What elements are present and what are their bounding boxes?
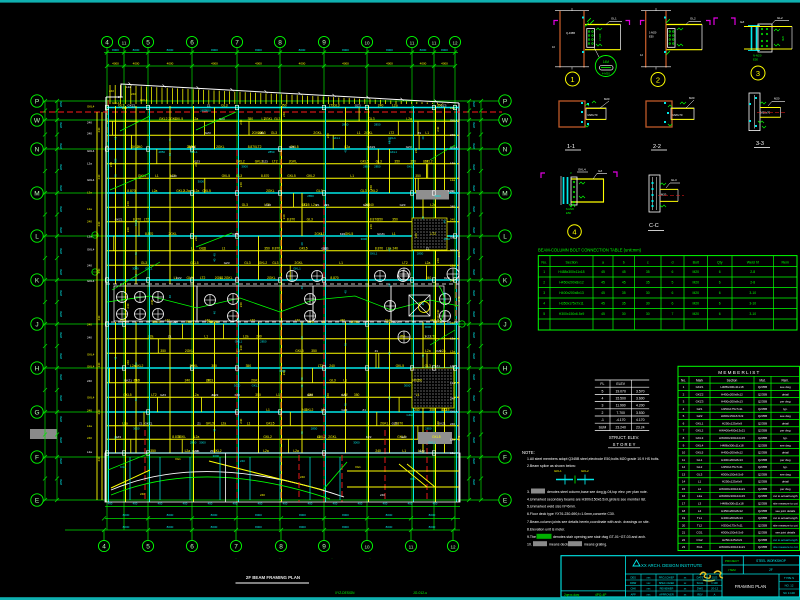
svg-text:GL1: GL1 <box>611 17 617 21</box>
svg-text:240: 240 <box>126 201 130 206</box>
svg-text:4.Unmarked secondary beams are: 4.Unmarked secondary beams are H300x150x… <box>527 498 646 502</box>
svg-text:detail: detail <box>782 451 789 455</box>
svg-text:2850: 2850 <box>59 142 63 149</box>
svg-text:Mark: Mark <box>696 379 703 383</box>
svg-text:13: 13 <box>682 472 686 476</box>
svg-text:400: 400 <box>133 502 138 506</box>
svg-text:GKZ1: GKZ1 <box>128 103 136 107</box>
svg-text:2850: 2850 <box>342 122 349 126</box>
svg-text:DRW: DRW <box>630 581 637 585</box>
svg-text:5: 5 <box>672 281 674 285</box>
svg-text:H350x175x7x11: H350x175x7x11 <box>721 407 743 411</box>
svg-text:Q235B: Q235B <box>758 472 767 476</box>
svg-text:6: 6 <box>719 312 721 316</box>
svg-text:8000: 8000 <box>386 48 393 52</box>
svg-text:GKL1: GKL1 <box>333 136 341 140</box>
svg-text:L2a: L2a <box>697 494 702 498</box>
svg-text:GKL5: GKL5 <box>287 174 296 178</box>
svg-text:GZ3: GZ3 <box>232 232 238 236</box>
svg-text:..: .. <box>331 556 333 560</box>
svg-text:240: 240 <box>260 493 265 497</box>
svg-text:2GKL: 2GKL <box>364 131 373 135</box>
svg-text:GKL1: GKL1 <box>696 421 704 425</box>
svg-text:8.870: 8.870 <box>145 232 153 236</box>
svg-text:240: 240 <box>140 492 145 496</box>
svg-text:2GKL: 2GKL <box>266 189 275 193</box>
svg-text:400: 400 <box>333 502 338 506</box>
svg-text:10: 10 <box>364 544 370 549</box>
svg-text:Q235B: Q235B <box>758 487 767 491</box>
svg-text:3: 3 <box>756 69 760 78</box>
svg-text:240: 240 <box>97 127 101 132</box>
svg-text:No.: No. <box>681 379 686 383</box>
svg-text:LT2: LT2 <box>318 364 324 368</box>
svg-text:LT2: LT2 <box>295 318 300 322</box>
svg-text:GZ3: GZ3 <box>406 145 412 149</box>
svg-text:2850: 2850 <box>472 142 476 149</box>
svg-text:GKL5: GKL5 <box>299 247 308 251</box>
svg-text:CG2: CG2 <box>696 538 703 542</box>
svg-text:2850: 2850 <box>472 457 476 464</box>
svg-text:SC 1:100: SC 1:100 <box>783 591 795 595</box>
svg-text:Q235B: Q235B <box>758 516 767 520</box>
svg-text:240: 240 <box>414 148 418 153</box>
svg-text:40: 40 <box>114 174 118 178</box>
svg-text:LT2: LT2 <box>165 318 170 322</box>
svg-text:M20: M20 <box>604 97 610 101</box>
svg-text:SPEC.CHIEF: SPEC.CHIEF <box>659 581 675 585</box>
svg-text:2850: 2850 <box>472 121 476 128</box>
svg-text:6: 6 <box>672 291 674 295</box>
svg-text:40: 40 <box>421 136 425 140</box>
svg-text:400: 400 <box>258 502 263 506</box>
svg-text:SUM: SUM <box>599 425 607 429</box>
svg-text:40: 40 <box>421 216 425 220</box>
svg-text:400: 400 <box>108 502 113 506</box>
svg-text:GZ3: GZ3 <box>393 320 399 324</box>
svg-text:H300x150x6.5x9: H300x150x6.5x9 <box>721 414 744 418</box>
svg-text:L1: L1 <box>262 117 266 121</box>
svg-text:2GKL: 2GKL <box>215 276 224 280</box>
svg-text:350: 350 <box>211 364 217 368</box>
svg-text:Z1: Z1 <box>211 393 215 397</box>
svg-text:2850: 2850 <box>472 289 476 296</box>
svg-text:L2a: L2a <box>87 424 92 428</box>
svg-text:GKL3: GKL3 <box>696 436 704 440</box>
svg-text:LT2: LT2 <box>250 318 255 322</box>
svg-text:8000: 8000 <box>299 48 306 52</box>
svg-text:Z1: Z1 <box>210 449 214 453</box>
svg-text:GKL2: GKL2 <box>259 261 268 265</box>
svg-text:XG1: XG1 <box>696 545 702 549</box>
svg-text:240: 240 <box>436 421 440 426</box>
svg-text:2850: 2850 <box>472 184 476 191</box>
svg-text:L1: L1 <box>247 422 251 426</box>
svg-text:G: G <box>502 409 507 416</box>
svg-text:240: 240 <box>87 322 92 326</box>
svg-text:Weld hf: Weld hf <box>747 261 759 265</box>
svg-text:350: 350 <box>281 103 287 107</box>
svg-text:40: 40 <box>388 351 392 355</box>
svg-text:240: 240 <box>87 436 92 440</box>
svg-text:240: 240 <box>369 224 373 229</box>
svg-text:L2a: L2a <box>152 189 158 193</box>
svg-text:Q235B: Q235B <box>758 523 767 527</box>
svg-text:14M: 14M <box>603 60 610 64</box>
svg-text:LT2: LT2 <box>200 276 206 280</box>
svg-text:8000: 8000 <box>112 48 119 52</box>
svg-text:35: 35 <box>646 281 650 285</box>
svg-text:4: 4 <box>601 397 603 401</box>
svg-text:per dwg: per dwg <box>780 400 791 404</box>
svg-text:3-10: 3-10 <box>749 291 756 295</box>
svg-text:40: 40 <box>388 283 392 287</box>
svg-text:Section: Section <box>566 261 578 265</box>
svg-text:240: 240 <box>118 95 123 99</box>
svg-text:45: 45 <box>601 291 605 295</box>
svg-text:L2a: L2a <box>425 261 431 265</box>
svg-text:H400x200x8x13: H400x200x8x13 <box>559 291 584 295</box>
svg-text:2850: 2850 <box>59 184 63 191</box>
svg-text:M20x70: M20x70 <box>588 113 598 117</box>
svg-text:L2a: L2a <box>392 103 398 107</box>
svg-text:3000: 3000 <box>425 325 432 329</box>
svg-text:45: 45 <box>601 312 605 316</box>
svg-text:40: 40 <box>213 428 217 432</box>
svg-text:240: 240 <box>131 92 136 96</box>
svg-text:240: 240 <box>122 106 127 110</box>
svg-text:30: 30 <box>646 312 650 316</box>
svg-text:E50: E50 <box>753 58 758 62</box>
svg-text:8.870: 8.870 <box>248 145 256 149</box>
svg-text:240: 240 <box>97 456 101 461</box>
svg-text:L1: L1 <box>416 393 420 397</box>
svg-text:2GKL: 2GKL <box>328 435 337 439</box>
svg-text:KZ2: KZ2 <box>425 335 431 339</box>
svg-text:3000: 3000 <box>434 194 441 198</box>
svg-text:see dwg: see dwg <box>780 443 791 447</box>
svg-text:GL3: GL3 <box>187 276 193 280</box>
svg-text:40: 40 <box>134 398 138 402</box>
svg-text:240: 240 <box>194 236 198 241</box>
svg-text:40: 40 <box>134 266 138 270</box>
svg-text:GKZ3: GKZ3 <box>696 400 704 404</box>
svg-text:8000: 8000 <box>255 48 262 52</box>
svg-text:40: 40 <box>421 354 425 358</box>
svg-text:L2a: L2a <box>450 364 455 368</box>
svg-text:8.870: 8.870 <box>127 189 135 193</box>
svg-text:2850: 2850 <box>59 394 63 401</box>
svg-text:Q235B: Q235B <box>758 531 767 535</box>
svg-text:240: 240 <box>97 221 101 226</box>
svg-text:TYPE S: TYPE S <box>784 576 794 580</box>
svg-text:site measure to cut: site measure to cut <box>773 545 798 549</box>
svg-text:DATE: DATE <box>697 575 704 579</box>
svg-text:Q235B: Q235B <box>758 392 767 396</box>
svg-text:L1: L1 <box>350 174 354 178</box>
svg-text:2gexx.dwg: 2gexx.dwg <box>564 593 579 597</box>
svg-text:40: 40 <box>300 242 304 246</box>
svg-text:Z1: Z1 <box>375 349 379 353</box>
svg-text:240: 240 <box>185 379 191 383</box>
svg-text:7.700: 7.700 <box>616 411 625 415</box>
svg-text:GZ3: GZ3 <box>307 393 313 397</box>
svg-text:typ.: typ. <box>783 407 788 411</box>
svg-text:KZ2: KZ2 <box>436 349 442 353</box>
svg-text:2850: 2850 <box>59 352 63 359</box>
svg-text:2GKL: 2GKL <box>185 349 194 353</box>
svg-text:2GKL: 2GKL <box>289 160 298 164</box>
svg-text:2850: 2850 <box>59 247 63 254</box>
svg-text:40: 40 <box>443 219 447 223</box>
svg-text:10.: 10. <box>527 543 532 547</box>
svg-text:8000: 8000 <box>167 525 174 529</box>
svg-text:40: 40 <box>213 311 217 315</box>
svg-text:GL3: GL3 <box>244 261 250 265</box>
svg-text:35: 35 <box>622 291 626 295</box>
svg-text:16: 16 <box>682 494 686 498</box>
svg-text:per dwg: per dwg <box>780 429 791 433</box>
svg-text:2850: 2850 <box>374 165 381 169</box>
svg-text:b: b <box>623 261 625 265</box>
svg-text:400: 400 <box>383 502 388 506</box>
svg-text:40: 40 <box>443 297 447 301</box>
svg-text:LT2: LT2 <box>431 335 437 339</box>
svg-text:K: K <box>35 277 40 284</box>
svg-text:HW400x400x13x21: HW400x400x13x21 <box>719 545 746 549</box>
svg-text:2GKL: 2GKL <box>351 320 360 324</box>
svg-text:GKL4: GKL4 <box>696 443 704 447</box>
svg-text:Z1: Z1 <box>436 364 440 368</box>
svg-text:GKL5: GKL5 <box>432 435 441 439</box>
svg-text:240: 240 <box>87 408 92 412</box>
svg-text:W: W <box>502 117 509 124</box>
svg-text:2GKL: 2GKL <box>380 422 389 426</box>
svg-text:240: 240 <box>256 335 262 339</box>
svg-text:H300x150x6.5x9: H300x150x6.5x9 <box>721 531 744 535</box>
svg-text:GL3: GL3 <box>274 117 280 121</box>
svg-text:8.870: 8.870 <box>375 247 383 251</box>
svg-text:40: 40 <box>114 436 118 440</box>
svg-text:240: 240 <box>239 345 243 350</box>
svg-text:STEEL WORKSHOP: STEEL WORKSHOP <box>756 559 786 563</box>
svg-text:GKL4: GKL4 <box>87 396 95 400</box>
svg-text:40: 40 <box>344 403 348 407</box>
svg-text:15: 15 <box>682 487 686 491</box>
svg-text:40: 40 <box>168 138 172 142</box>
svg-text:GL3: GL3 <box>697 472 703 476</box>
svg-text:GKL5: GKL5 <box>360 160 369 164</box>
svg-text:240: 240 <box>393 247 399 251</box>
svg-text:1:100: 1:100 <box>711 581 718 585</box>
svg-text:4: 4 <box>102 543 106 550</box>
svg-text:..: .. <box>369 556 371 560</box>
svg-text:L2: L2 <box>698 487 702 491</box>
svg-text:GKL4: GKL4 <box>578 168 586 172</box>
svg-text:KZ2: KZ2 <box>266 203 272 207</box>
svg-text:4.170: 4.170 <box>636 418 645 422</box>
svg-text:TL1: TL1 <box>697 516 703 520</box>
svg-text:350: 350 <box>255 393 261 397</box>
svg-text:2-8: 2-8 <box>750 270 755 274</box>
svg-text:H350x175x7x11: H350x175x7x11 <box>721 523 743 527</box>
svg-text:L2a: L2a <box>450 178 455 182</box>
svg-text:W: W <box>34 117 41 124</box>
svg-text:2850: 2850 <box>472 331 476 338</box>
svg-text:GL3: GL3 <box>236 174 242 178</box>
svg-text:40: 40 <box>168 295 172 299</box>
svg-text:240: 240 <box>300 475 305 479</box>
svg-text:GZ3: GZ3 <box>289 145 295 149</box>
svg-text:20: 20 <box>682 523 686 527</box>
svg-text:40: 40 <box>134 219 138 223</box>
svg-text:4000: 4000 <box>386 62 393 66</box>
svg-text:REV: REV <box>697 592 703 596</box>
svg-text:M20: M20 <box>661 193 667 197</box>
svg-text:240: 240 <box>239 182 243 187</box>
svg-text:Z1: Z1 <box>326 203 330 207</box>
svg-text:GKL2: GKL2 <box>696 429 704 433</box>
svg-text:240: 240 <box>240 459 245 463</box>
svg-text:2.Beam splice as shown below:: 2.Beam splice as shown below: <box>527 464 576 468</box>
svg-text:GKZ1: GKZ1 <box>696 385 704 389</box>
svg-text:GKL5: GKL5 <box>345 232 354 236</box>
svg-text:3000: 3000 <box>198 179 205 183</box>
svg-text:E: E <box>35 497 40 504</box>
svg-text:M20: M20 <box>692 281 699 285</box>
svg-text:19: 19 <box>682 516 686 520</box>
svg-text:240: 240 <box>450 133 455 137</box>
svg-text:GL2: GL2 <box>777 16 783 20</box>
svg-text:8000: 8000 <box>342 525 349 529</box>
svg-text:E50: E50 <box>566 211 571 215</box>
svg-text:3-10: 3-10 <box>749 302 756 306</box>
svg-text:L1: L1 <box>276 393 280 397</box>
svg-text:GKL5: GKL5 <box>301 203 310 207</box>
svg-text:M: M <box>502 190 507 197</box>
svg-text:Q235B: Q235B <box>758 436 767 440</box>
svg-text:8.870: 8.870 <box>287 218 295 222</box>
svg-text:2850: 2850 <box>59 121 63 128</box>
svg-text:40: 40 <box>388 139 392 143</box>
svg-text:M20: M20 <box>781 35 785 41</box>
svg-text:4: 4 <box>105 39 109 46</box>
svg-text:240: 240 <box>457 252 461 257</box>
svg-text:40: 40 <box>134 362 138 366</box>
svg-text:GZ3: GZ3 <box>400 203 406 207</box>
svg-text:240: 240 <box>380 493 385 497</box>
svg-text:GKL5: GKL5 <box>190 261 199 265</box>
svg-text:GKL4: GKL4 <box>87 149 95 153</box>
svg-text:LT2: LT2 <box>402 261 408 265</box>
svg-text:detail: detail <box>782 480 789 484</box>
svg-text:3-10: 3-10 <box>749 312 756 316</box>
svg-text:2: 2 <box>601 411 603 415</box>
svg-text:8000: 8000 <box>167 48 174 52</box>
svg-text:7.Beam-column joints see detai: 7.Beam-column joints see details herein,… <box>527 520 650 524</box>
svg-text:2850: 2850 <box>59 310 63 317</box>
svg-text:40: 40 <box>114 136 118 140</box>
svg-text:240: 240 <box>436 309 440 314</box>
svg-text:GKL2: GKL2 <box>213 449 222 453</box>
svg-text:350: 350 <box>248 117 254 121</box>
svg-text:400: 400 <box>308 502 313 506</box>
svg-text:240: 240 <box>457 296 461 301</box>
svg-text:-1: -1 <box>601 418 604 422</box>
svg-text:LT2: LT2 <box>431 232 437 236</box>
svg-text:HW300x300x10x15: HW300x300x10x15 <box>719 436 746 440</box>
svg-text:..: .. <box>235 556 237 560</box>
svg-text:FL: FL <box>600 382 604 386</box>
svg-text:240: 240 <box>450 205 455 209</box>
svg-text:denotes steel column,base see: denotes steel column,base see dwg jg-04,… <box>547 490 648 494</box>
svg-text:8000: 8000 <box>386 513 393 517</box>
svg-text:Z1: Z1 <box>197 422 201 426</box>
svg-text:H300x150x6.5x9: H300x150x6.5x9 <box>559 312 585 316</box>
svg-text:GKZ1: GKZ1 <box>377 232 385 236</box>
svg-text:GKL1: GKL1 <box>235 340 243 344</box>
svg-text:GKL2: GKL2 <box>318 435 327 439</box>
svg-text:LT2: LT2 <box>256 145 262 149</box>
svg-text:M20x70: M20x70 <box>673 113 683 117</box>
svg-text:2850: 2850 <box>472 373 476 380</box>
svg-text:2850: 2850 <box>59 457 63 464</box>
svg-text:350: 350 <box>264 247 270 251</box>
svg-text:GZ3: GZ3 <box>419 449 425 453</box>
svg-text:C-C: C-C <box>649 223 659 229</box>
svg-text:LT2: LT2 <box>389 131 395 135</box>
svg-text:8000: 8000 <box>386 525 393 529</box>
svg-text:240: 240 <box>375 449 381 453</box>
svg-text:4000: 4000 <box>133 62 140 66</box>
svg-text:L2a: L2a <box>450 437 455 441</box>
svg-text:11: 11 <box>432 40 437 45</box>
svg-text:L1: L1 <box>204 335 208 339</box>
svg-text:cut to actual length: cut to actual length <box>773 516 798 520</box>
svg-text:Z1: Z1 <box>426 247 430 251</box>
svg-text:4: 4 <box>543 302 545 306</box>
svg-text:Bolt: Bolt <box>693 261 699 265</box>
svg-text:4000: 4000 <box>167 62 174 66</box>
svg-text:GZ3: GZ3 <box>392 422 398 426</box>
svg-text:30: 30 <box>646 302 650 306</box>
svg-text:7: 7 <box>235 39 239 46</box>
svg-text:240: 240 <box>368 203 374 207</box>
svg-text:see dwg: see dwg <box>780 472 791 476</box>
svg-text:Rem.: Rem. <box>781 379 789 383</box>
svg-text:L: L <box>35 233 39 240</box>
svg-text:L2a: L2a <box>450 381 455 385</box>
svg-text:40: 40 <box>213 258 217 262</box>
svg-text:240: 240 <box>369 185 373 190</box>
svg-text:2850: 2850 <box>59 415 63 422</box>
svg-text:KZ2: KZ2 <box>176 276 182 280</box>
svg-text:8000: 8000 <box>133 48 140 52</box>
svg-text:GL3: GL3 <box>221 103 227 107</box>
svg-text:GKL5: GKL5 <box>266 422 275 426</box>
svg-text:2850: 2850 <box>59 289 63 296</box>
svg-text:GZ3: GZ3 <box>171 174 177 178</box>
svg-text:detail: detail <box>782 392 789 396</box>
svg-text:GZ3: GZ3 <box>355 103 361 107</box>
svg-text:GZ3: GZ3 <box>224 261 230 265</box>
svg-text:40: 40 <box>300 384 304 388</box>
svg-text:GKL4: GKL4 <box>87 104 95 108</box>
svg-text:KZ2: KZ2 <box>341 393 347 397</box>
svg-text:GKL1: GKL1 <box>370 252 378 256</box>
svg-text:GL3: GL3 <box>333 103 339 107</box>
svg-text:3.530: 3.530 <box>636 411 645 415</box>
